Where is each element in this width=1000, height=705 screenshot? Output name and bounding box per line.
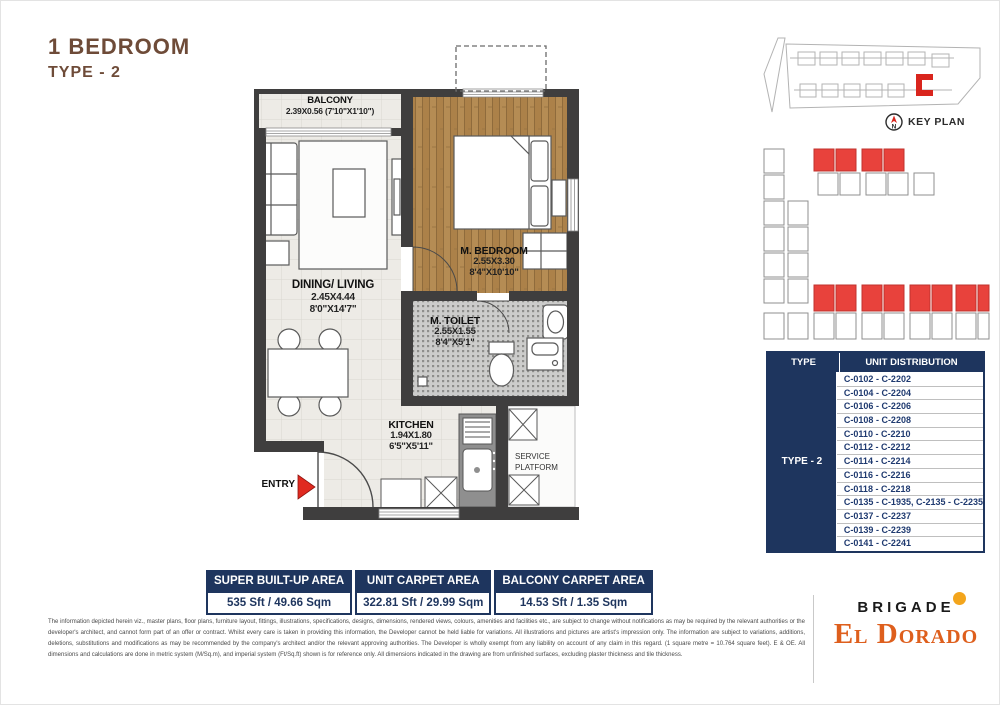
pillow bbox=[531, 141, 548, 181]
disclaimer-text: The information depicted herein viz., ma… bbox=[48, 617, 805, 661]
service-platform-label: SERVICE PLATFORM bbox=[511, 451, 573, 473]
dining-chair bbox=[278, 329, 300, 351]
area-value: 14.53 Sft / 1.35 Sqm bbox=[496, 591, 650, 613]
area-header: UNIT CARPET AREA bbox=[357, 572, 489, 591]
floor-plan: BALCONY 2.39X0.56 (7'10"X1'10") DINING/ … bbox=[241, 39, 601, 541]
sofa bbox=[261, 143, 297, 235]
eldorado-wordmark: El Dorado bbox=[823, 620, 989, 649]
super-builtup-area-table: SUPER BUILT-UP AREA 535 Sft / 49.66 Sqm bbox=[206, 570, 352, 615]
unit-distribution-row: C-0118 - C-2218 bbox=[837, 483, 983, 497]
bedside-table bbox=[552, 180, 566, 216]
unit-rows: C-0102 - C-2202C-0104 - C-2204C-0106 - C… bbox=[837, 372, 983, 551]
logo-dot-icon bbox=[953, 592, 966, 605]
brochure-page: 1 BEDROOM TYPE - 2 bbox=[0, 0, 1000, 705]
dining-chair bbox=[319, 329, 341, 351]
tower-block-diagram bbox=[758, 143, 991, 345]
wc-bowl bbox=[490, 354, 514, 386]
dining-label: DINING/ LIVING 2.45X4.44 8'0"X14'7" bbox=[269, 279, 397, 315]
unit-distribution-row: C-0139 - C-2239 bbox=[837, 524, 983, 538]
bedroom-label: M. BEDROOM 2.55X3.30 8'4"X10'10" bbox=[426, 245, 562, 279]
unit-carpet-area-table: UNIT CARPET AREA 322.81 Sft / 29.99 Sqm bbox=[355, 570, 491, 615]
unit-distribution-row: C-0108 - C-2208 bbox=[837, 414, 983, 428]
unit-distribution-row: C-0116 - C-2216 bbox=[837, 469, 983, 483]
area-value: 322.81 Sft / 29.99 Sqm bbox=[357, 591, 489, 613]
distribution-column-header: UNIT DISTRIBUTION bbox=[840, 353, 983, 372]
key-plan-caption: N KEY PLAN bbox=[885, 113, 965, 131]
brigade-wordmark: BRIGADE bbox=[857, 599, 954, 616]
unit-distribution-row: C-0114 - C-2214 bbox=[837, 455, 983, 469]
washbasin bbox=[548, 311, 564, 333]
entry-arrow-icon bbox=[298, 475, 315, 499]
dashed-opening bbox=[456, 46, 546, 91]
coffee-table bbox=[333, 169, 365, 217]
area-header: BALCONY CARPET AREA bbox=[496, 572, 650, 591]
unit-distribution-row: C-0106 - C-2206 bbox=[837, 400, 983, 414]
balcony-carpet-area-table: BALCONY CARPET AREA 14.53 Sft / 1.35 Sqm bbox=[494, 570, 652, 615]
area-header: SUPER BUILT-UP AREA bbox=[208, 572, 350, 591]
unit-distribution-row: C-0104 - C-2204 bbox=[837, 387, 983, 401]
balcony-label: BALCONY 2.39X0.56 (7'10"X1'10") bbox=[256, 96, 404, 117]
svg-text:N: N bbox=[892, 124, 897, 131]
pillow bbox=[531, 186, 548, 226]
unit-distribution-row: C-0141 - C-2241 bbox=[837, 537, 983, 551]
north-arrow-icon: N bbox=[885, 113, 903, 131]
kitchen-label: KITCHEN 1.94X1.80 6'5"X5'11" bbox=[361, 419, 461, 453]
area-summary: SUPER BUILT-UP AREA 535 Sft / 49.66 Sqm … bbox=[206, 570, 653, 615]
unit-table-header: TYPE UNIT DISTRIBUTION bbox=[768, 353, 983, 372]
unit-distribution-row: C-0137 - C-2237 bbox=[837, 510, 983, 524]
unit-distribution-row: C-0102 - C-2202 bbox=[837, 373, 983, 387]
unit-distribution-row: C-0135 - C-1935, C-2135 - C-2235 bbox=[837, 496, 983, 510]
area-value: 535 Sft / 49.66 Sqm bbox=[208, 591, 350, 613]
brand-logo: BRIGADE El Dorado bbox=[823, 599, 989, 649]
type-cell: TYPE - 2 bbox=[768, 372, 837, 551]
logo-divider bbox=[813, 595, 814, 683]
floor-drain bbox=[418, 377, 427, 386]
unit-distribution-table: TYPE UNIT DISTRIBUTION TYPE - 2 C-0102 -… bbox=[766, 351, 985, 553]
page-title: 1 BEDROOM bbox=[48, 34, 190, 60]
page-subtitle: TYPE - 2 bbox=[48, 64, 190, 82]
unit-distribution-row: C-0110 - C-2210 bbox=[837, 428, 983, 442]
dining-table bbox=[268, 349, 348, 397]
type-column-header: TYPE bbox=[768, 353, 840, 372]
toilet-label: M. TOILET 2.55X1.55 8'4"X5'1" bbox=[411, 315, 499, 349]
page-title-block: 1 BEDROOM TYPE - 2 bbox=[48, 34, 190, 82]
entry-label: ENTRY bbox=[247, 479, 295, 491]
unit-distribution-row: C-0112 - C-2212 bbox=[837, 441, 983, 455]
key-plan-highlight bbox=[916, 74, 933, 96]
kitchen-counter bbox=[381, 479, 421, 509]
side-table bbox=[263, 241, 289, 265]
